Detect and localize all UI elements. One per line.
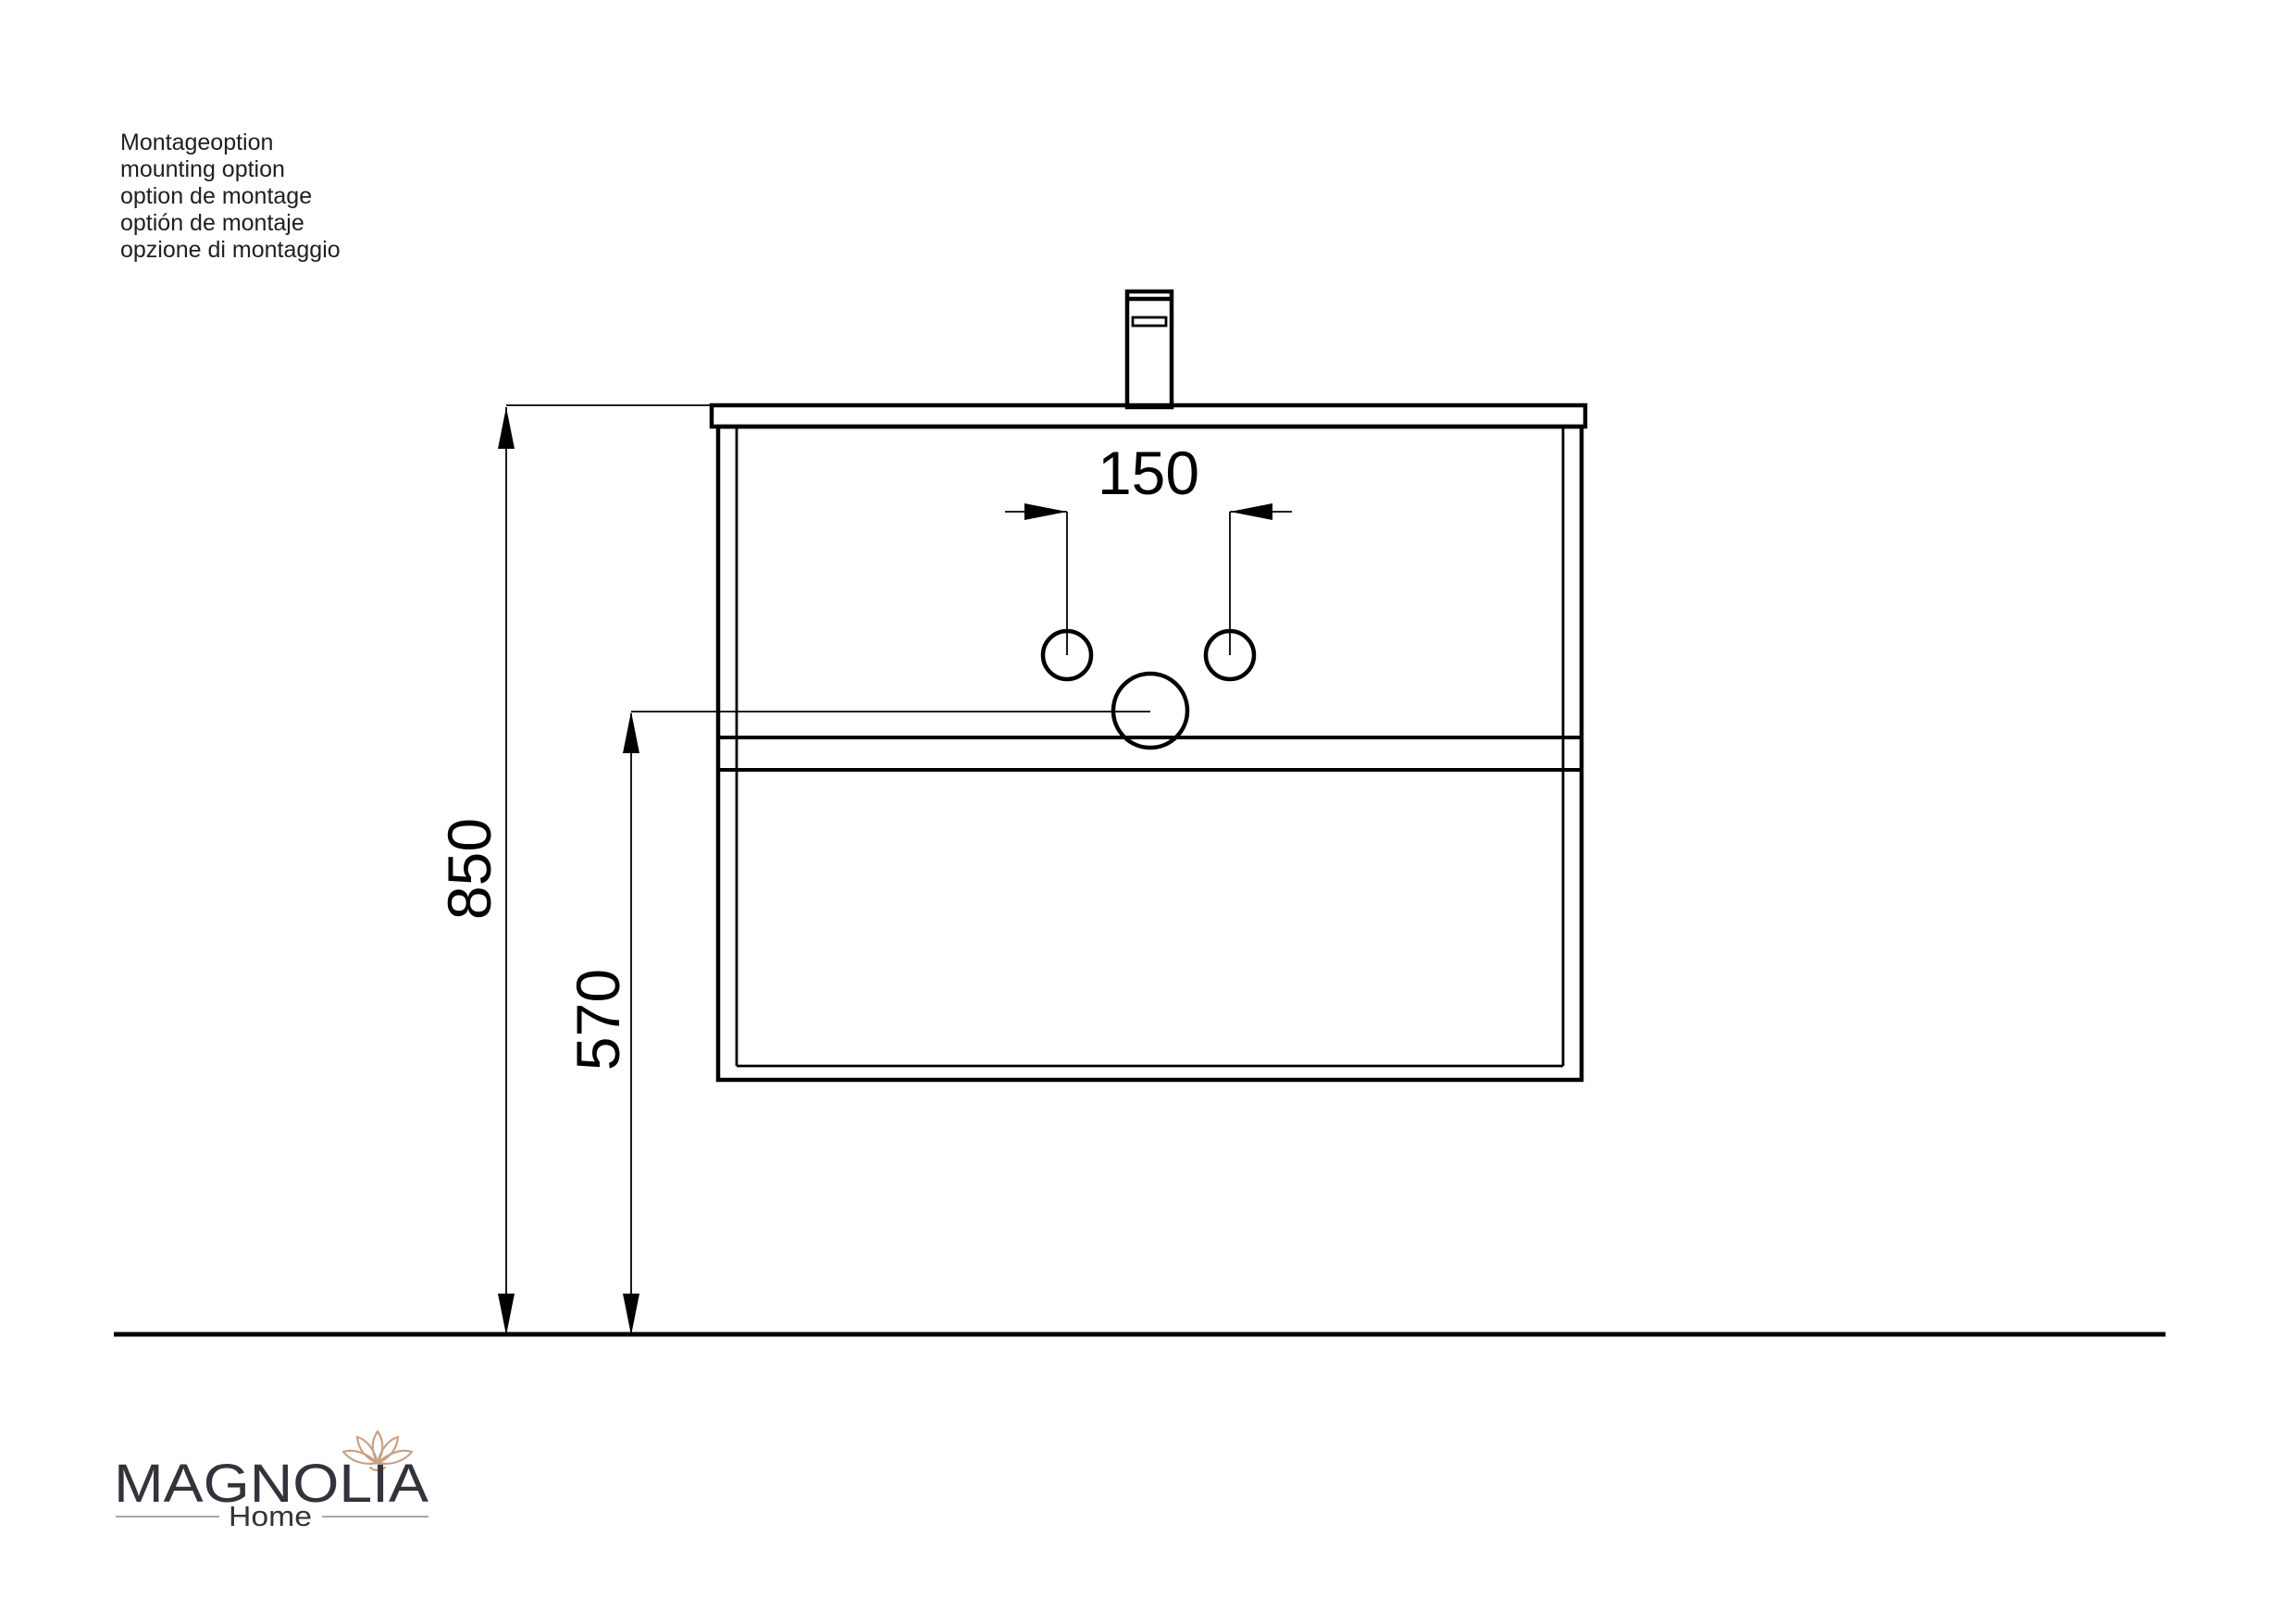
annotation-line-de: Montageoption: [120, 130, 273, 155]
technical-drawing: Montageoption mounting option option de …: [0, 0, 2296, 1623]
drawing-page: Montageoption mounting option option de …: [0, 0, 2296, 1623]
cabinet: [718, 427, 1582, 1080]
arrowhead-down-icon: [623, 1294, 639, 1335]
annotation-line-fr: option de montage: [120, 183, 312, 209]
cabinet-outline: [718, 427, 1582, 1080]
logo: MAGNOLIA Home: [114, 1431, 428, 1532]
arrowhead-right-icon: [1024, 503, 1067, 520]
arrowhead-down-icon: [498, 1294, 515, 1335]
dim-hole-spacing-value: 150: [1098, 439, 1199, 507]
faucet-spout-detail: [1133, 317, 1166, 326]
arrowhead-up-icon: [498, 407, 515, 449]
dim-total-height-value: 850: [435, 818, 503, 920]
arrowhead-up-icon: [623, 712, 639, 753]
faucet-body: [1127, 291, 1172, 407]
annotation-line-es: optión de montaje: [120, 210, 304, 236]
dim-hole-spacing: 150: [1005, 439, 1292, 655]
annotation-line-en: mounting option: [120, 156, 285, 182]
dim-clearance-height: 570: [564, 712, 1150, 1335]
arrowhead-left-icon: [1230, 503, 1272, 520]
annotation-line-it: opzione di montaggio: [120, 237, 341, 263]
annotation-block: Montageoption mounting option option de …: [120, 130, 341, 263]
faucet: [1127, 291, 1172, 407]
dim-total-height: 850: [435, 405, 714, 1335]
brand-subtitle: Home: [229, 1500, 312, 1532]
dim-clearance-height-value: 570: [564, 969, 632, 1071]
